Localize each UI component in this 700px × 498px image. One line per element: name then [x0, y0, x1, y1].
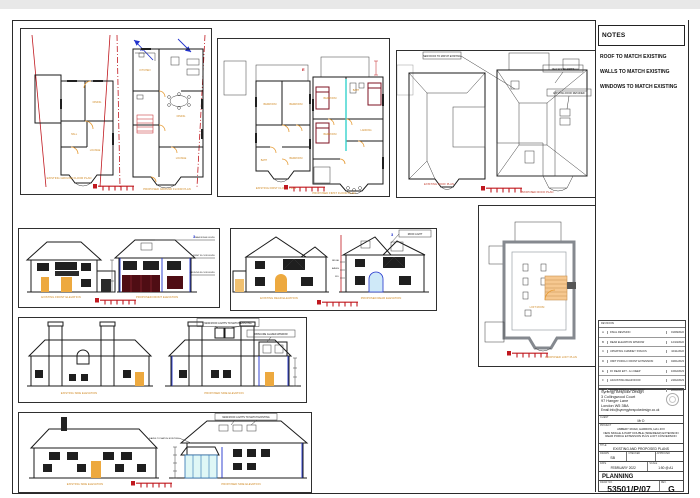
svg-text:NEW ROOF LIGHTS: NEW ROOF LIGHTS	[552, 68, 575, 71]
existing-front-elevation	[27, 242, 115, 292]
caption-proposed-roof: PROPOSED ROOF PLAN	[521, 190, 554, 194]
svg-text:NEW ROOF TO MATCH EXISTING: NEW ROOF TO MATCH EXISTING	[423, 55, 461, 58]
furniture	[135, 53, 199, 109]
proposed-side-elevation-1: NEW ROOF LIGHTS TO MATCH EXISTING OBSCUR…	[169, 319, 297, 387]
company-block: Synergy Bespoke Design 3 Collingwood Cou…	[598, 388, 684, 416]
client-row: CLIENT Mr D	[598, 416, 684, 424]
existing-side-elevation-2	[31, 417, 157, 478]
caption-proposed-rear: PROPOSED REAR ELEVATION	[361, 296, 401, 300]
panel-side-elevations-1: NEW ROOF LIGHTS TO MATCH EXISTING OBSCUR…	[18, 317, 307, 403]
proposed-first-floor-plan: BEDROOM LANDING BEDROOM BATH	[312, 57, 384, 194]
svg-text:DINING: DINING	[177, 115, 186, 118]
level-annotations: MAX RIDGE LEVEL FIRST FLOOR LEVEL GROUND…	[155, 236, 216, 275]
status-value: PLANNING	[599, 472, 683, 480]
loft-stair	[545, 276, 567, 300]
svg-text:NEW ROOF LIGHTS TO MATCH EXIST: NEW ROOF LIGHTS TO MATCH EXISTING	[222, 416, 269, 419]
svg-text:BEDROOM: BEDROOM	[290, 103, 303, 106]
side-elevations-1-drawing: NEW ROOF LIGHTS TO MATCH EXISTING OBSCUR…	[19, 318, 304, 400]
caption-existing-side2: EXISTING SIDE ELEVATION	[67, 482, 103, 486]
roof-plans-drawing: NEW ROOF TO MATCH EXISTING NEW ROOF LIGH…	[397, 51, 593, 195]
date-value: FEBRUARY 2022	[599, 466, 647, 470]
project-label: PROJECT	[600, 424, 611, 427]
revision-row: FADJUSTING REAR ROOF24/02/2023	[599, 376, 685, 386]
drawn-value: SB	[599, 456, 626, 460]
proposed-side-elevation-2: NEW ROOF LIGHTS TO MATCH EXISTING EAVES …	[149, 414, 307, 479]
notes-header-box: NOTES	[598, 25, 685, 46]
existing-ground-floor-plan: DINING HALL LOUNGE	[35, 75, 114, 186]
caption-existing-front: EXISTING FRONT ELEVATION	[41, 295, 80, 299]
scale-bar	[481, 186, 522, 193]
svg-text:EXISTING ROOF RETAINED: EXISTING ROOF RETAINED	[553, 92, 585, 95]
plan-sheet: { "notes": { "header": "NOTES", "line1":…	[0, 0, 700, 498]
revision-row: BREAR ELEVATION WINDOW12/10/2022	[599, 338, 685, 348]
side-elevations-2-drawing: NEW ROOF LIGHTS TO MATCH EXISTING EAVES …	[19, 413, 309, 490]
title-block-column: NOTES ROOF TO MATCH EXISTING WALLS TO MA…	[595, 20, 688, 492]
svg-text:BEDROOM: BEDROOM	[324, 97, 337, 100]
approved-label: APPROVED	[657, 452, 670, 455]
svg-text:RIDGE: RIDGE	[332, 260, 339, 262]
proposed-ground-floor-plan: KITCHEN DINING LOUNGE	[133, 48, 203, 188]
svg-text:BEDROOM: BEDROOM	[264, 103, 277, 106]
svg-text:ROOF LIGHT: ROOF LIGHT	[408, 233, 423, 236]
drawn-label: DRAWN	[600, 452, 609, 455]
svg-text:OBSCURE GLAZED WINDOW: OBSCURE GLAZED WINDOW	[254, 333, 288, 336]
svg-text:FIRST FLOOR LEVEL: FIRST FLOOR LEVEL	[193, 255, 216, 257]
scale-bar	[507, 351, 548, 358]
caption-proposed-gf: PROPOSED GROUND FLOOR PLAN	[143, 187, 191, 191]
viewer-top-strip	[0, 0, 700, 9]
revision-row: CUPDATING CHIMNEY STACKS10/11/2022	[599, 347, 685, 357]
proposed-rear-elevation: 3 ROOF LIGHT RIDGE EAVES FFL	[332, 230, 431, 292]
panel-loft-plan: LOFT ROOM PROPOSED LOFT PLAN	[478, 205, 597, 367]
note-line-1: ROOF TO MATCH EXISTING	[600, 54, 666, 60]
panel-rear-elevations: 3 ROOF LIGHT RIDGE EAVES FFL EXISTING RE…	[230, 228, 437, 311]
proposed-roof-plan	[497, 53, 587, 191]
client-value: Mr D	[599, 419, 683, 423]
svg-text:DINING: DINING	[93, 101, 102, 104]
caption-loft-plan: PROPOSED LOFT PLAN	[545, 355, 577, 359]
date-label: DATE	[600, 462, 606, 465]
svg-text:BEDROOM: BEDROOM	[290, 157, 303, 160]
panel-front-elevations: 3 MAX RIDGE LEVEL FIRST FLOOR LEVEL GROU…	[18, 228, 220, 308]
svg-text:NEW ROOF LIGHTS TO MATCH EXIST: NEW ROOF LIGHTS TO MATCH EXISTING	[204, 322, 251, 325]
side1-annotations: NEW ROOF LIGHTS TO MATCH EXISTING OBSCUR…	[197, 319, 295, 343]
project-row: PROJECT AMBERY ROAD, HARROW, HA1 4XX NEW…	[598, 424, 684, 444]
panel-side-elevations-2: NEW ROOF LIGHTS TO MATCH EXISTING EAVES …	[18, 412, 312, 493]
svg-text:BATH: BATH	[353, 89, 360, 92]
revision-table: REVISIONS AFINAL REVISION01/08/2022 BREA…	[598, 320, 686, 390]
svg-text:LOUNGE: LOUNGE	[90, 149, 101, 152]
note-line-3: WINDOWS TO MATCH EXISTING	[600, 84, 677, 90]
notes-header: NOTES	[599, 32, 625, 39]
caption-proposed-side2: PROPOSED SIDE ELEVATION	[221, 482, 260, 486]
rev-value: G	[660, 484, 683, 494]
caption-existing-side1: EXISTING SIDE ELEVATION	[61, 391, 97, 395]
section-marker: E	[302, 67, 305, 72]
scale-value: 1:50 @ A1	[648, 466, 683, 470]
scale-bar	[95, 298, 136, 305]
roof-annotations: NEW ROOF TO MATCH EXISTING NEW ROOF LIGH…	[423, 52, 591, 109]
rear-elevations-drawing: 3 ROOF LIGHT RIDGE EAVES FFL EXISTING RE…	[231, 229, 434, 308]
svg-text:FFL: FFL	[335, 276, 340, 278]
scale-bar	[317, 300, 358, 307]
svg-text:BEDROOM: BEDROOM	[324, 133, 337, 136]
revision-table-header: REVISIONS	[599, 321, 685, 328]
side2-annotations: NEW ROOF LIGHTS TO MATCH EXISTING EAVES …	[149, 414, 277, 444]
svg-text:EAVES: EAVES	[332, 267, 340, 270]
company-email: Email:info@synergybespokedesign.co.uk	[601, 408, 683, 413]
panel-roof-plans: NEW ROOF TO MATCH EXISTING NEW ROOF LIGH…	[396, 50, 596, 198]
note-line-2: WALLS TO MATCH EXISTING	[600, 69, 670, 75]
checked-label: CHECKED	[628, 452, 640, 455]
status-row: PLANNING	[598, 472, 684, 481]
scale-bar	[131, 481, 172, 488]
panel-ground-floor-plans: N DINING HALL LOUNGE KITCHEN DINING	[20, 28, 212, 195]
project-line-3: REAR PORCH EXTENSION PLUS LOFT CONVERSIO…	[599, 435, 683, 439]
svg-text:BATH: BATH	[261, 159, 268, 162]
drawing-number: 53501/P/07	[599, 484, 659, 494]
svg-text:LANDING: LANDING	[360, 129, 371, 132]
drawn-checked-approved-row: DRAWNSB CHECKED APPROVED	[598, 452, 684, 462]
proposed-front-elevation: 3 MAX RIDGE LEVEL FIRST FLOOR LEVEL GROU…	[110, 234, 216, 292]
first-floor-plans-drawing: BEDROOM BEDROOM BEDROOM BATH E BEDROOM L…	[218, 39, 387, 194]
existing-roof-plan	[409, 73, 485, 190]
svg-text:EAVES TO MATCH EXISTING: EAVES TO MATCH EXISTING	[149, 437, 179, 440]
drawing-title: EXISTING AND PROPOSED PLANS	[599, 447, 683, 451]
company-logo	[666, 393, 679, 406]
front-elevations-drawing: 3 MAX RIDGE LEVEL FIRST FLOOR LEVEL GROU…	[19, 229, 217, 305]
caption-existing-ff: EXISTING FIRST FLOOR PLAN	[256, 186, 296, 190]
existing-side-elevation-1	[29, 322, 151, 386]
svg-text:LOUNGE: LOUNGE	[176, 157, 187, 160]
ground-floor-plans-drawing: N DINING HALL LOUNGE KITCHEN DINING	[21, 29, 209, 192]
scale-bar	[93, 184, 134, 191]
caption-existing-gf: EXISTING GROUND FLOOR PLAN	[47, 176, 92, 180]
rooflight-symbols	[511, 59, 579, 163]
dim-labels: RIDGE EAVES FFL	[332, 260, 345, 278]
caption-proposed-ff: PROPOSED FIRST FLOOR PLAN	[312, 191, 355, 194]
existing-first-floor-plan: BEDROOM BEDROOM BEDROOM BATH	[224, 61, 311, 182]
caption-existing-rear: EXISTING REAR ELEVATION	[260, 296, 298, 300]
revision-row: DOMIT PORCH / FRONT EXTENSION04/01/2023	[599, 357, 685, 367]
date-scale-row: DATEFEBRUARY 2022 SCALE1:50 @ A1	[598, 462, 684, 472]
svg-text:KITCHEN: KITCHEN	[140, 69, 151, 72]
panel-first-floor-plans: BEDROOM BEDROOM BEDROOM BATH E BEDROOM L…	[217, 38, 390, 197]
scale-label: SCALE	[649, 462, 657, 465]
stair-highlight	[137, 115, 153, 133]
caption-proposed-side1: PROPOSED SIDE ELEVATION	[204, 391, 243, 395]
loft-plan-drawing: LOFT ROOM PROPOSED LOFT PLAN	[479, 206, 594, 364]
drawing-number-row: DRAW. NO. 53501/P/07 REV. G	[598, 481, 684, 492]
revision-row: AFINAL REVISION01/08/2022	[599, 328, 685, 338]
svg-text:3: 3	[391, 232, 394, 237]
title-row: TITLE EXISTING AND PROPOSED PLANS	[598, 444, 684, 452]
revision-row: EFF REAR EXT - 1m DEEP16/02/2023	[599, 367, 685, 377]
svg-text:GROUND FLOOR LEVEL: GROUND FLOOR LEVEL	[190, 272, 216, 274]
caption-proposed-front: PROPOSED FRONT ELEVATION	[136, 295, 178, 299]
svg-text:MAX RIDGE LEVEL: MAX RIDGE LEVEL	[195, 236, 215, 239]
svg-text:LOFT ROOM: LOFT ROOM	[530, 306, 545, 309]
existing-rear-elevation	[233, 237, 327, 292]
caption-existing-roof: EXISTING ROOF PLAN	[424, 182, 454, 186]
svg-text:HALL: HALL	[71, 133, 78, 136]
